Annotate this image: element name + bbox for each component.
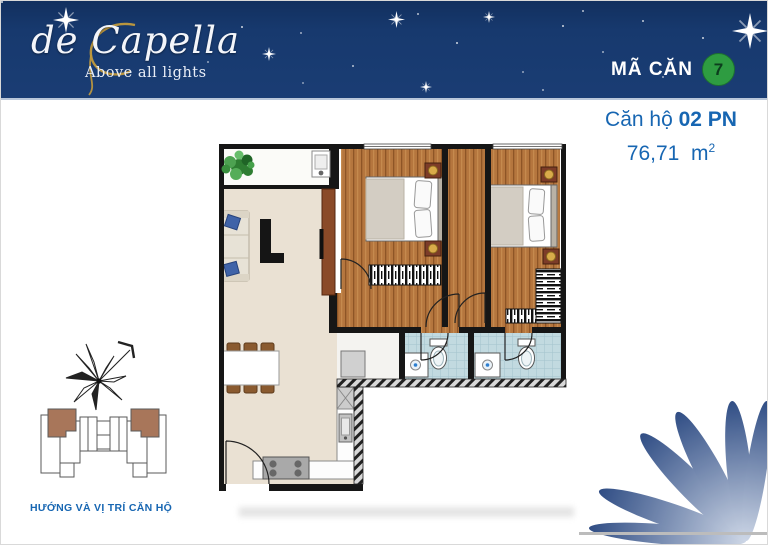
unit-name: Căn hộ 02 PN xyxy=(573,105,768,134)
ac-unit-icon xyxy=(312,151,330,177)
bed-bedroom-1 xyxy=(366,177,444,241)
unit-code-label: MÃ CĂN xyxy=(611,59,693,81)
wall-section xyxy=(337,379,566,387)
sliding-panel xyxy=(322,189,335,295)
unit-code-block: MÃ CĂN 7 xyxy=(611,53,735,86)
header-banner: de Capella Above all lights MÃ CĂN 7 xyxy=(1,1,768,100)
sparkle-icon xyxy=(420,81,432,93)
key-plan-caption: HƯỚNG VÀ VỊ TRÍ CĂN HỘ xyxy=(23,502,179,514)
star-field-icon xyxy=(1,1,3,3)
sparkle-icon xyxy=(732,13,768,49)
wardrobe-bedroom-2 xyxy=(506,309,536,323)
logo: de Capella Above all lights xyxy=(23,5,243,95)
unit-name-prefix: Căn hộ xyxy=(605,108,673,131)
sofa xyxy=(223,211,249,281)
wardrobe-bedroom-1 xyxy=(369,265,441,285)
sparkle-icon xyxy=(483,11,495,23)
bed-bedroom-2 xyxy=(489,185,557,247)
unit-code-badge: 7 xyxy=(702,53,735,86)
washer-icon xyxy=(341,351,365,377)
building-key-plan xyxy=(36,401,171,486)
dining-table xyxy=(223,343,279,393)
unit-name-bold: 02 PN xyxy=(679,108,737,131)
petal-baseline xyxy=(579,532,768,535)
lotus-petals-icon xyxy=(576,381,768,545)
logo-tagline: Above all lights xyxy=(85,65,207,81)
plan-shadow xyxy=(239,507,574,517)
tv-icon xyxy=(320,229,324,259)
wall-section xyxy=(354,387,363,484)
wardrobe-bedroom-2 xyxy=(536,269,561,323)
logo-text: de Capella xyxy=(31,19,240,62)
unit-area: 76,71 m2 xyxy=(573,134,768,168)
unit-area-unit: m2 xyxy=(685,142,715,165)
floor-plan xyxy=(209,137,569,529)
unit-info: Căn hộ 02 PN 76,71 m2 xyxy=(573,105,768,168)
sparkle-icon xyxy=(262,47,276,61)
sparkle-icon xyxy=(388,11,405,28)
brochure-page: de Capella Above all lights MÃ CĂN 7 Căn… xyxy=(0,0,768,545)
unit-area-value: 76,71 xyxy=(627,142,680,165)
